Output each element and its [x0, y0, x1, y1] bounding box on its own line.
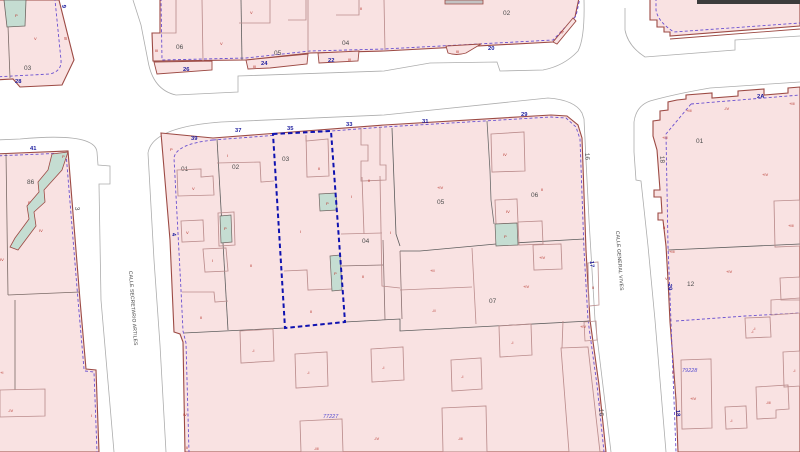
svg-text:04: 04: [342, 40, 350, 47]
svg-text:-IV: -IV: [724, 106, 729, 111]
svg-text:-I: -I: [753, 326, 755, 331]
svg-text:86: 86: [27, 179, 35, 186]
svg-text:33: 33: [346, 122, 353, 128]
svg-text:22: 22: [328, 58, 334, 64]
svg-text:P: P: [326, 201, 329, 206]
svg-text:+IV: +IV: [539, 255, 545, 260]
svg-text:V: V: [192, 186, 195, 191]
svg-text:-I: -I: [511, 340, 513, 345]
svg-text:20: 20: [488, 46, 494, 52]
svg-text:P: P: [334, 271, 337, 276]
svg-text:06: 06: [176, 44, 184, 51]
svg-text:V: V: [186, 230, 189, 235]
svg-text:I: I: [300, 229, 301, 234]
svg-text:II: II: [250, 263, 252, 268]
svg-text:V: V: [220, 41, 223, 46]
svg-text:IV: IV: [183, 412, 187, 417]
svg-text:20: 20: [666, 284, 672, 291]
svg-text:-I: -I: [307, 370, 309, 375]
svg-text:29: 29: [521, 112, 528, 118]
svg-text:-I: -I: [382, 365, 384, 370]
svg-text:II: II: [360, 6, 362, 11]
svg-text:I: I: [91, 413, 92, 418]
svg-text:P: P: [170, 147, 173, 152]
svg-text:II: II: [318, 166, 320, 171]
svg-text:III: III: [253, 64, 256, 69]
svg-text:P: P: [62, 154, 65, 159]
svg-text:II: II: [186, 445, 188, 450]
svg-text:+II: +II: [430, 268, 435, 273]
svg-text:+IV: +IV: [690, 396, 696, 401]
svg-text:03: 03: [24, 65, 32, 72]
svg-text:V: V: [250, 10, 253, 15]
svg-text:II: II: [541, 187, 543, 192]
svg-text:II: II: [599, 400, 601, 405]
svg-text:-I: -I: [252, 348, 254, 353]
svg-text:04: 04: [362, 238, 370, 245]
svg-text:02: 02: [232, 164, 240, 171]
svg-text:+IV: +IV: [437, 185, 443, 190]
svg-text:-I: -I: [730, 418, 732, 423]
svg-text:P: P: [504, 234, 507, 239]
svg-text:16: 16: [583, 153, 591, 161]
svg-text:-III: -III: [458, 436, 463, 441]
svg-text:77227: 77227: [323, 414, 339, 420]
svg-text:II: II: [310, 309, 312, 314]
svg-text:I: I: [390, 230, 391, 235]
svg-text:26: 26: [183, 67, 190, 73]
svg-text:II: II: [362, 274, 364, 279]
svg-text:P: P: [15, 13, 18, 18]
svg-text:IV: IV: [506, 209, 510, 214]
svg-text:79228: 79228: [682, 368, 698, 374]
svg-text:III: III: [348, 57, 351, 62]
svg-text:-I: -I: [461, 374, 463, 379]
svg-text:-I: -I: [793, 368, 795, 373]
svg-text:II: II: [200, 315, 202, 320]
svg-text:+IV: +IV: [726, 269, 732, 274]
svg-text:+IV: +IV: [523, 284, 529, 289]
svg-text:-III: -III: [766, 400, 771, 405]
svg-text:+III: +III: [669, 249, 675, 254]
svg-text:+III: +III: [788, 223, 794, 228]
svg-text:12: 12: [687, 281, 695, 288]
svg-text:IV: IV: [503, 152, 507, 157]
svg-text:17: 17: [588, 261, 594, 268]
svg-text:III: III: [155, 48, 158, 53]
svg-text:V: V: [665, 276, 668, 281]
svg-text:+III: +III: [662, 135, 668, 140]
svg-text:P: P: [224, 226, 227, 231]
svg-text:2A: 2A: [757, 94, 765, 100]
svg-text:03: 03: [282, 156, 290, 163]
svg-text:18: 18: [658, 156, 666, 164]
svg-text:III: III: [63, 37, 68, 41]
svg-text:V: V: [34, 36, 37, 41]
svg-text:02: 02: [503, 10, 511, 17]
svg-text:II: II: [672, 370, 674, 375]
svg-text:+IV: +IV: [580, 324, 586, 329]
svg-text:35: 35: [287, 126, 294, 132]
svg-text:01: 01: [696, 138, 704, 145]
svg-text:+IV: +IV: [762, 172, 768, 177]
svg-text:I: I: [227, 153, 228, 158]
svg-text:-IV: -IV: [374, 436, 379, 441]
svg-text:II: II: [368, 178, 370, 183]
svg-text:II: II: [592, 285, 594, 290]
svg-text:I: I: [351, 194, 352, 199]
svg-text:-II: -II: [432, 308, 436, 313]
svg-text:P: P: [28, 200, 31, 205]
svg-text:+III: +III: [789, 101, 795, 106]
svg-text:+I: +I: [0, 370, 3, 375]
svg-text:06: 06: [531, 192, 539, 199]
svg-text:28: 28: [15, 79, 22, 85]
svg-text:-IV: -IV: [8, 408, 13, 413]
svg-text:39: 39: [191, 136, 198, 142]
svg-text:II: II: [663, 225, 665, 230]
svg-text:I: I: [212, 258, 213, 263]
svg-text:41: 41: [30, 146, 37, 152]
svg-text:07: 07: [489, 298, 497, 305]
svg-text:37: 37: [235, 128, 241, 134]
svg-text:05: 05: [274, 50, 282, 57]
svg-text:05: 05: [437, 199, 445, 206]
svg-text:18: 18: [674, 410, 680, 418]
svg-text:-III: -III: [314, 446, 319, 451]
svg-text:III: III: [456, 49, 459, 54]
svg-text:IV: IV: [39, 228, 43, 233]
svg-text:16: 16: [597, 409, 605, 417]
svg-text:24: 24: [261, 61, 268, 67]
svg-text:IV: IV: [0, 257, 4, 262]
svg-text:+III: +III: [686, 108, 692, 113]
svg-text:31: 31: [422, 119, 429, 125]
